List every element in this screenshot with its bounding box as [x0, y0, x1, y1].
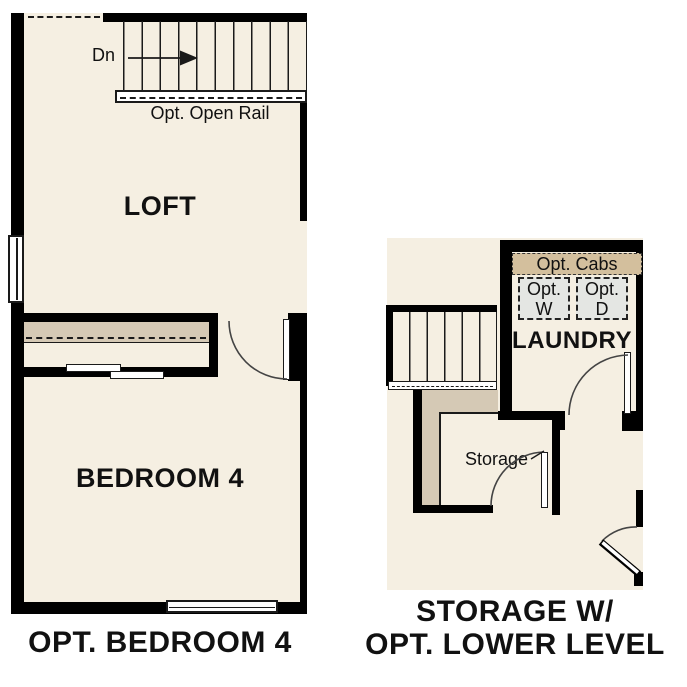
wall-segment — [552, 420, 560, 515]
stair-rail — [388, 381, 497, 390]
right-plan-caption-line2: OPT. LOWER LEVEL — [343, 628, 687, 661]
window — [166, 600, 278, 613]
optional-cabinets: Opt. Cabs — [512, 253, 642, 275]
rail-dashed-line — [120, 97, 302, 99]
right-plan-caption-line1: STORAGE W/ — [343, 595, 687, 628]
wall-segment — [500, 240, 643, 252]
stairs-direction-label: Dn — [92, 45, 115, 65]
optional-washer: Opt. W — [518, 277, 570, 320]
wall-segment — [622, 411, 643, 431]
stair-wall — [386, 305, 497, 312]
wall-segment — [636, 490, 643, 527]
wall-segment — [634, 572, 643, 586]
storage-wall-line — [440, 412, 498, 414]
rail-label: Opt. Open Rail — [110, 103, 310, 123]
wall-segment — [288, 313, 307, 381]
wall-segment — [11, 313, 218, 322]
stairs — [123, 21, 307, 92]
stairs — [393, 312, 497, 381]
window — [8, 235, 24, 303]
wall-opening-dashed — [28, 16, 100, 18]
closet-bypass-door — [110, 371, 164, 379]
window-glass-line — [169, 607, 275, 609]
rail-dashed-line — [392, 386, 493, 387]
open-rail — [115, 90, 307, 103]
optional-dryer: Opt. D — [576, 277, 628, 320]
closet-shelf — [24, 322, 209, 343]
window-glass-line — [16, 238, 18, 300]
right-plan-caption: STORAGE W/ OPT. LOWER LEVEL — [343, 595, 687, 661]
storage-room-label: Storage — [440, 449, 553, 469]
optional-cabinets-label: Opt. Cabs — [536, 254, 617, 274]
closet-rod-dashed — [26, 337, 206, 339]
bedroom-door-panel — [283, 319, 290, 380]
laundry-door-panel — [624, 352, 631, 414]
laundry-room-label: LAUNDRY — [502, 327, 642, 355]
bedroom-room-label: BEDROOM 4 — [60, 463, 260, 494]
wall-segment — [413, 505, 493, 513]
loft-room-label: LOFT — [60, 191, 260, 222]
wall-segment — [413, 390, 422, 512]
floorplan-image: Dn Opt. Open Rail LOFT BEDROOM 4 OPT. BE… — [0, 0, 687, 687]
storage-furred-wall — [422, 390, 440, 507]
stair-wall — [386, 305, 393, 386]
left-plan-caption: OPT. BEDROOM 4 — [0, 626, 320, 659]
